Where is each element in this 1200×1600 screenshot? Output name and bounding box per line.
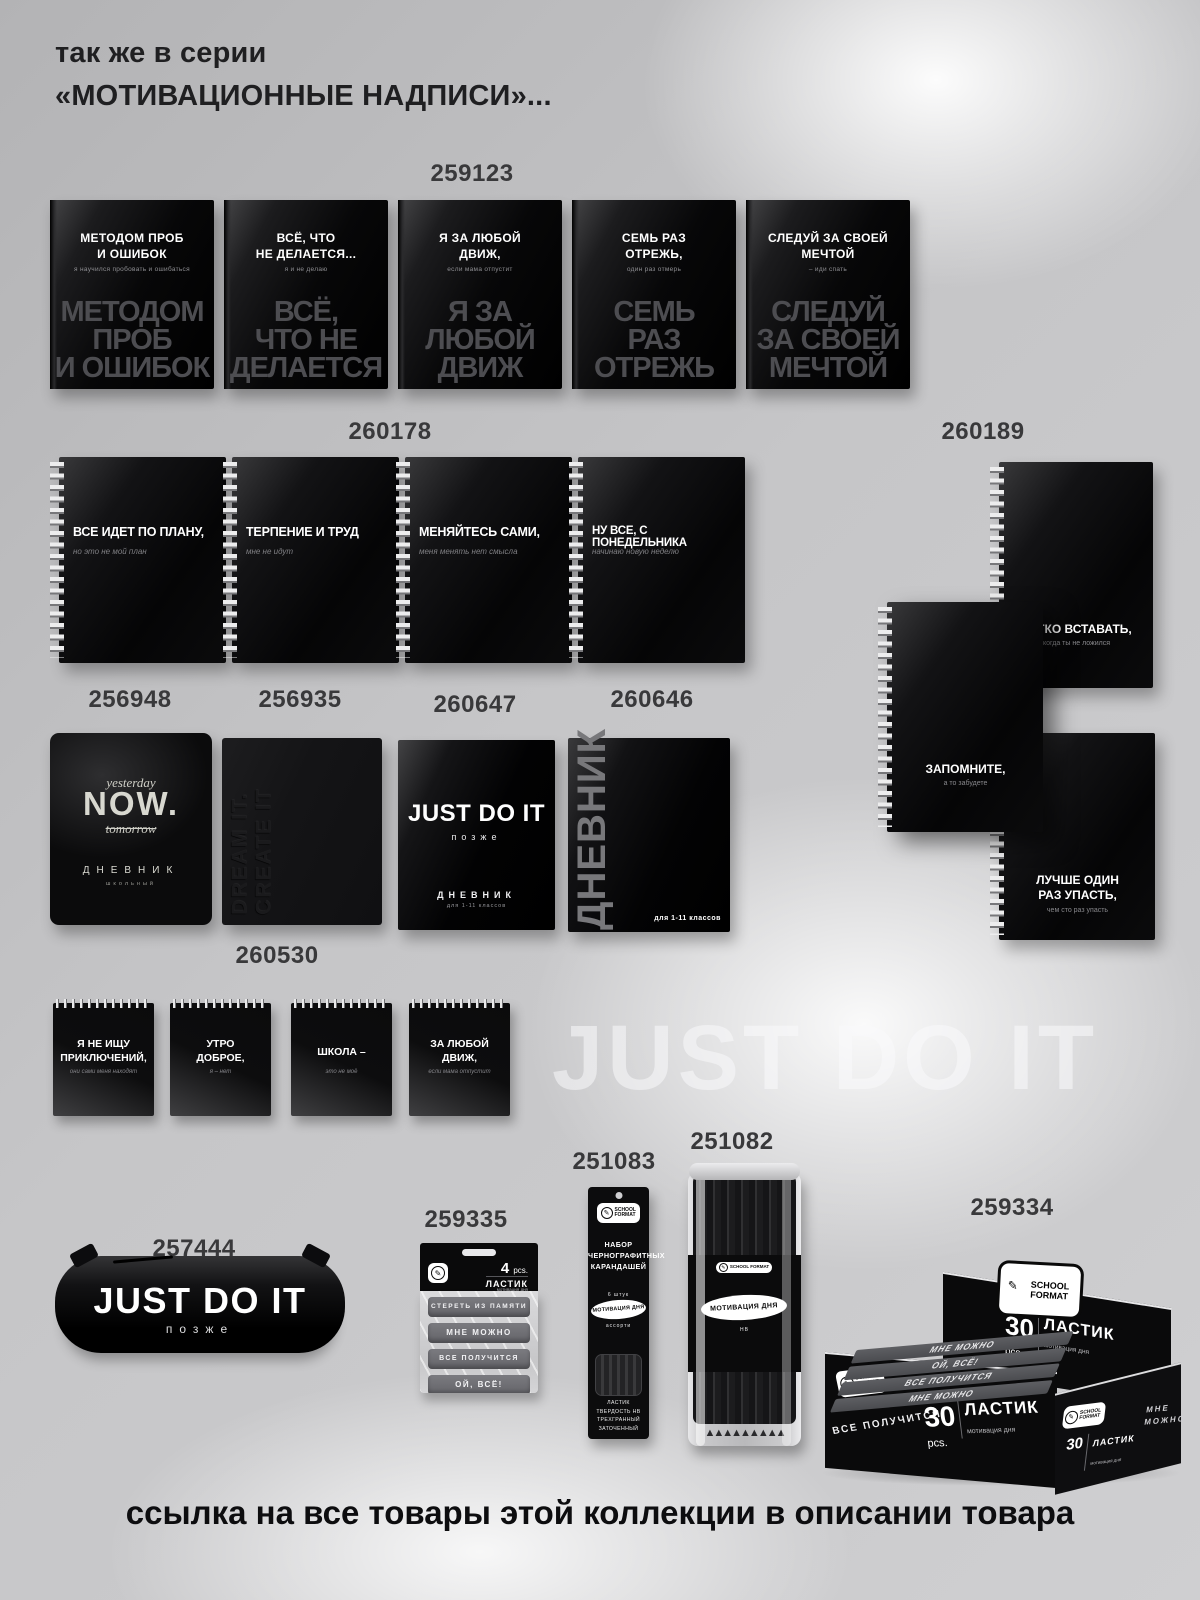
eraser: МНЕ МОЖНО <box>428 1323 529 1343</box>
eraser: СТЕРЕТЬ ИЗ ПАМЯТИ <box>428 1297 529 1317</box>
article-256948: 256948 <box>88 686 171 714</box>
notebook-title: МЕТОДОМ ПРОБ И ОШИБОК <box>50 230 214 262</box>
notepad-shkola: ШКОЛА – это не моё <box>291 1003 392 1116</box>
diary-dream-it-create-it: DREAM IT. CREATE IT <box>222 738 382 925</box>
notepad-coil <box>294 999 389 1008</box>
diary-sublabel: школьный <box>50 881 212 887</box>
count-number: 30 <box>1065 1434 1084 1453</box>
diary-now-text: NOW. <box>50 785 212 823</box>
page-title: так же в серии «МОТИВАЦИОННЫЕ НАДПИСИ»..… <box>55 32 552 118</box>
spiral-notebook-terpenie-i-trud: ТЕРПЕНИЕ И ТРУД мне не идут <box>223 457 399 663</box>
schoolformat-logo-icon: ✎ <box>1007 1278 1028 1299</box>
spiral-notebook-nu-vse-s-ponedelnika: НУ ВСЕ, С ПОНЕДЕЛЬНИКА начинаю новую нед… <box>569 457 745 663</box>
diary-dnevnik-vertical: ДНЕВНИК для 1-11 классов <box>568 738 730 932</box>
spiral-subtitle: а то забудете <box>892 780 1039 787</box>
notepad-cover <box>291 1003 392 1116</box>
notepad-subtitle: если мама отпустит <box>409 1069 510 1075</box>
box-sublabel: мотивация дня <box>967 1427 1016 1436</box>
diary-label: ДНЕВНИК <box>50 865 212 876</box>
spiral-subtitle: чем сто раз упасть <box>1004 907 1151 914</box>
box-sublabel: мотивация дня <box>1090 1457 1122 1466</box>
article-260530: 260530 <box>235 942 318 970</box>
tube-cap <box>689 1163 800 1180</box>
schoolformat-logo: ✎ SCHOOL FORMAT <box>597 1203 640 1223</box>
spiral-notebook-menyaytes-sami: МЕНЯЙТЕСЬ САМИ, меня менять нет смысла <box>396 457 572 663</box>
notebook-subtitle: я и не делаю <box>224 266 388 273</box>
spiral-subtitle: меня менять нет смысла <box>419 547 566 556</box>
notebook-sem-raz-otrezh: СЕМЬ РАЗ ОТРЕЖЬ, один раз отмерь СЕМЬ РА… <box>572 200 736 389</box>
notepad-title: ШКОЛА – <box>291 1045 392 1059</box>
schoolformat-logo-icon: ✎ <box>719 1263 728 1272</box>
spiral-title: ЛУЧШЕ ОДИН РАЗ УПАСТЬ, <box>1004 873 1151 903</box>
schoolformat-logo: ✎ <box>428 1263 448 1283</box>
pencil-set-count: 6 штук <box>588 1292 649 1298</box>
article-260189: 260189 <box>941 418 1024 446</box>
notebook-ghost-text: СЛЕДУЙ ЗА СВОЕЙ МЕЧТОЙ <box>746 298 910 382</box>
spiral-coil <box>50 462 64 658</box>
tube-body: ▲▲▲▲▲▲▲▲▲ ✎ SCHOOL FORMAT МОТИВАЦИЯ ДНЯ … <box>688 1172 801 1446</box>
notebook-ya-za-luboy-dvizh: Я ЗА ЛЮБОЙ ДВИЖ, если мама отпустит Я ЗА… <box>398 200 562 389</box>
count-unit: pcs. <box>513 1266 528 1275</box>
spiral-notebook-cover <box>232 457 399 663</box>
spiral-title: ЗАПОМНИТЕ, <box>892 762 1039 777</box>
diary-now: yesterday NOW. tomorrow ДНЕВНИК школьный <box>50 733 212 925</box>
background-watermark: JUST DO IT <box>552 1006 1098 1111</box>
article-251082: 251082 <box>690 1128 773 1156</box>
eraser: ВСЕ ПОЛУЧИТСЯ <box>428 1349 529 1369</box>
diary-sub-text: позже <box>398 832 555 842</box>
notepad-title: ЗА ЛЮБОЙ ДВИЖ, <box>409 1037 510 1065</box>
pencil-case-tab <box>301 1243 331 1268</box>
eraser: ОЙ, ВСЁ! <box>428 1375 529 1393</box>
pencil-case-sub-text: позже <box>55 1322 345 1336</box>
schoolformat-logo: ✎ SCHOOL FORMAT <box>716 1262 772 1273</box>
spiral-subtitle: но это не мой план <box>73 547 220 556</box>
notepad-za-luboy-dvizh: ЗА ЛЮБОЙ ДВИЖ, если мама отпустит <box>409 1003 510 1116</box>
motivation-badge: МОТИВАЦИЯ ДНЯ <box>590 1298 646 1321</box>
schoolformat-logo-icon: ✎ <box>601 1207 613 1219</box>
schoolformat-logo-text: SCHOOL FORMAT <box>1079 1408 1104 1422</box>
diary-main-text: JUST DO IT <box>398 800 555 828</box>
notebook-ghost-text: МЕТОДОМ ПРОБ И ОШИБОК <box>50 298 214 382</box>
count-number: 4 <box>501 1260 509 1277</box>
notebook-subtitle: один раз отмерь <box>572 266 736 273</box>
diary-grades-label: для 1-11 классов <box>398 903 555 909</box>
eraser-pack-bag: СТЕРЕТЬ ИЗ ПАМЯТИ МНЕ МОЖНО ВСЕ ПОЛУЧИТС… <box>420 1291 538 1393</box>
spiral-notebook-cover <box>578 457 745 663</box>
notebook-subtitle: – иди спать <box>746 266 910 273</box>
spiral-title: МЕНЯЙТЕСЬ САМИ, <box>419 525 566 539</box>
box-label: ЛАСТИК <box>1092 1433 1135 1449</box>
spiral-title: НУ ВСЕ, С ПОНЕДЕЛЬНИКА <box>592 525 739 549</box>
pencil-set-title: НАБОР ЧЕРНОГРАФИТНЫХ КАРАНДАШЕЙ <box>588 1239 649 1272</box>
notebook-title: ВСЁ, ЧТО НЕ ДЕЛАЕТСЯ... <box>224 230 388 262</box>
pencil-window <box>595 1354 642 1396</box>
notepad-title: Я НЕ ИЩУ ПРИКЛЮЧЕНИЙ, <box>53 1037 154 1065</box>
notebook-metodom-prob: МЕТОДОМ ПРОБ И ОШИБОК я научился пробова… <box>50 200 214 389</box>
spiral-subtitle: начинаю новую неделю <box>592 547 739 556</box>
diary-just-do-it: JUST DO IT позже ДНЕВНИК для 1-11 классо… <box>398 740 555 930</box>
page-title-line2: «МОТИВАЦИОННЫЕ НАДПИСИ»... <box>55 75 552 118</box>
glass-highlight <box>782 1172 791 1446</box>
footer-note: ссылка на все товары этой коллекции в оп… <box>0 1494 1200 1532</box>
diary-script-tomorrow: tomorrow <box>50 821 212 837</box>
notepad-utro-dobroe: УТРО ДОБРОЕ, я – нет <box>170 1003 271 1116</box>
diary-grades-label: для 1-11 классов <box>654 915 721 922</box>
spiral-coil <box>878 607 892 827</box>
page-title-line1: так же в серии <box>55 32 552 75</box>
notebook-subtitle: если мама отпустит <box>398 266 562 273</box>
motivation-badge: МОТИВАЦИЯ ДНЯ <box>700 1293 787 1322</box>
notebook-title: Я ЗА ЛЮБОЙ ДВИЖ, <box>398 230 562 262</box>
hang-hole <box>615 1192 622 1199</box>
diary-vertical-text: ДНЕВНИК <box>570 736 615 930</box>
eraser-display-box: 30 pcs. ЛАСТИК мотивация дня ✎ SCHOOL FO… <box>815 1250 1185 1482</box>
spiral-notebook-cover <box>887 602 1043 832</box>
notebook-ghost-text: СЕМЬ РАЗ ОТРЕЖЬ <box>572 298 736 382</box>
zipper <box>113 1255 173 1263</box>
spiral-subtitle: мне не идут <box>246 547 393 556</box>
notebook-title: СЛЕДУЙ ЗА СВОЕЙ МЕЧТОЙ <box>746 230 910 262</box>
eraser-pack-count: 4 pcs. <box>501 1260 528 1277</box>
spiral-notebook-vse-idet-po-planu: ВСЕ ИДЕТ ПО ПЛАНУ, но это не мой план <box>50 457 226 663</box>
schoolformat-logo-text: SCHOOL FORMAT <box>1030 1280 1073 1302</box>
article-259335: 259335 <box>424 1206 507 1234</box>
article-259123: 259123 <box>430 160 513 188</box>
article-251083: 251083 <box>572 1148 655 1176</box>
pencil-tube: ▲▲▲▲▲▲▲▲▲ ✎ SCHOOL FORMAT МОТИВАЦИЯ ДНЯ … <box>688 1163 801 1446</box>
spiral-coil <box>223 462 237 658</box>
schoolformat-logo: ✎ SCHOOL FORMAT <box>1062 1402 1106 1430</box>
notebook-ghost-text: Я ЗА ЛЮБОЙ ДВИЖ <box>398 298 562 382</box>
spiral-title: ВСЕ ИДЕТ ПО ПЛАНУ, <box>73 525 220 539</box>
count-unit: pcs. <box>927 1437 948 1450</box>
notebook-subtitle: я научился пробовать и ошибаться <box>50 266 214 273</box>
notebook-title: СЕМЬ РАЗ ОТРЕЖЬ, <box>572 230 736 262</box>
hang-slot <box>462 1249 496 1256</box>
spiral-coil <box>569 462 583 658</box>
spiral-title: ТЕРПЕНИЕ И ТРУД <box>246 525 393 539</box>
spiral-notebook-cover <box>59 457 226 663</box>
schoolformat-logo-icon: ✎ <box>1064 1410 1078 1425</box>
article-260647: 260647 <box>433 691 516 719</box>
eraser-pack-4pcs: ✎ 4 pcs. ЛАСТИК мотивация дня СТЕРЕТЬ ИЗ… <box>420 1243 538 1393</box>
notebook-vse-chto-ne-delaetsya: ВСЁ, ЧТО НЕ ДЕЛАЕТСЯ... я и не делаю ВСЁ… <box>224 200 388 389</box>
pencil-set-blister: ✎ SCHOOL FORMAT НАБОР ЧЕРНОГРАФИТНЫХ КАР… <box>588 1187 649 1439</box>
box-right-slogan: МНЕ МОЖНО <box>1143 1401 1180 1429</box>
notepad-coil <box>56 999 151 1008</box>
schoolformat-logo: ✎ SCHOOL FORMAT <box>996 1260 1085 1320</box>
article-260178: 260178 <box>348 418 431 446</box>
notepad-subtitle: они сами меня находят <box>53 1069 154 1075</box>
notepad-title: УТРО ДОБРОЕ, <box>170 1037 271 1065</box>
notepad-subtitle: я – нет <box>170 1069 271 1075</box>
notepad-ya-ne-ischu-priklucheniy: Я НЕ ИЩУ ПРИКЛЮЧЕНИЙ, они сами меня нахо… <box>53 1003 154 1116</box>
notepad-coil <box>173 999 268 1008</box>
pencil-case-main-text: JUST DO IT <box>55 1280 345 1322</box>
pencil-set-assort: ассорти <box>588 1323 649 1329</box>
spiral-coil <box>396 462 410 658</box>
article-260646: 260646 <box>610 686 693 714</box>
diary-embossed-text: DREAM IT. CREATE IT <box>228 748 276 915</box>
notepad-subtitle: это не моё <box>291 1069 392 1075</box>
diary-label: ДНЕВНИК <box>398 890 555 900</box>
box-side-count: 30 ЛАСТИК мотивация дня <box>1063 1428 1136 1473</box>
spiral-notebook-zapomnite: ЗАПОМНИТЕ, а то забудете <box>878 602 1043 832</box>
article-256935: 256935 <box>258 686 341 714</box>
article-259334: 259334 <box>970 1194 1053 1222</box>
notebook-ghost-text: ВСЁ, ЧТО НЕ ДЕЛАЕТСЯ <box>224 298 388 382</box>
notepad-coil <box>412 999 507 1008</box>
spiral-notebook-cover <box>405 457 572 663</box>
schoolformat-logo-text: SCHOOL FORMAT <box>615 1208 637 1219</box>
eraser-pack-header: ✎ 4 pcs. ЛАСТИК мотивация дня <box>420 1243 538 1291</box>
pencil-case-tab <box>69 1243 99 1268</box>
notebook-sleduy-za-mechtoy: СЛЕДУЙ ЗА СВОЕЙ МЕЧТОЙ – иди спать СЛЕДУ… <box>746 200 910 389</box>
schoolformat-logo-text: SCHOOL FORMAT <box>730 1265 769 1270</box>
pencil-case-just-do-it: JUST DO IT позже <box>55 1256 345 1353</box>
glass-highlight <box>696 1172 705 1446</box>
schoolformat-logo-icon: ✎ <box>431 1266 445 1280</box>
promo-poster: так же в серии «МОТИВАЦИОННЫЕ НАДПИСИ»..… <box>0 0 1200 1600</box>
pencil-set-specs: ЛАСТИК ТВЕРДОСТЬ HB ТРЕХГРАННЫЙ ЗАТОЧЕНН… <box>588 1399 649 1433</box>
